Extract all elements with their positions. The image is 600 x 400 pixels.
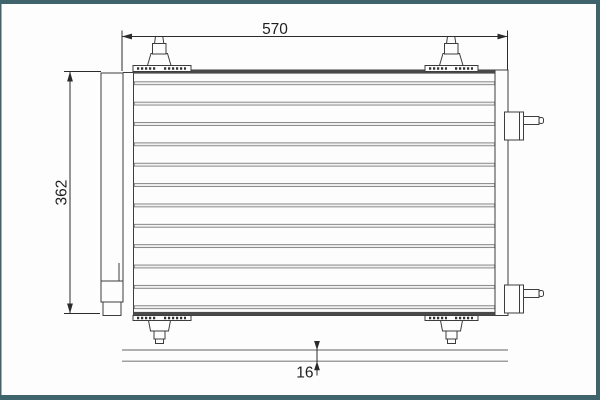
pin-tip <box>446 331 457 339</box>
frame-bottom <box>0 395 600 400</box>
bracket-plate <box>425 316 478 321</box>
arrowhead-left <box>122 34 132 40</box>
dimension-label-width: 570 <box>262 21 288 38</box>
drier-bottom-cap <box>103 302 121 316</box>
arrowhead-right <box>498 34 508 40</box>
pin-tip <box>154 331 165 339</box>
condenser-core <box>134 70 509 316</box>
core-tube <box>134 102 494 105</box>
core-tube <box>134 245 494 248</box>
bracket-plate <box>425 66 478 72</box>
pin-base <box>440 54 464 66</box>
bottom-right-mounting-bracket <box>425 316 478 344</box>
connector-pipe-end <box>539 291 544 297</box>
core-outline <box>134 70 509 316</box>
arrowhead-up <box>314 361 320 370</box>
dimension-depth: 16 <box>122 341 508 382</box>
top-right-mounting-bracket <box>425 37 478 72</box>
connector-block <box>505 112 524 140</box>
core-tubes <box>134 82 494 309</box>
connector-block <box>505 285 524 313</box>
condenser-assembly <box>101 37 544 344</box>
top-left-mounting-bracket <box>133 37 191 72</box>
page-frame <box>0 0 600 400</box>
dimension-label-depth: 16 <box>296 365 313 382</box>
core-tube <box>134 204 494 207</box>
pin-foot <box>448 339 456 344</box>
drier-body <box>101 73 123 302</box>
core-tube <box>134 306 494 309</box>
core-tube <box>134 184 494 187</box>
arrowhead-top <box>67 72 73 82</box>
core-tube <box>134 82 494 85</box>
arrowhead-bottom <box>67 304 73 314</box>
arrowhead-down <box>314 341 320 350</box>
connector-pipe <box>524 290 540 298</box>
core-tube <box>134 285 494 288</box>
pin-foot <box>156 339 164 344</box>
pin-cap <box>447 37 456 44</box>
pin-mid <box>153 44 167 55</box>
top-right-pipe-connector <box>505 112 544 140</box>
core-tube <box>134 123 494 126</box>
frame-top <box>0 0 600 4</box>
pin-base <box>148 54 172 66</box>
bottom-left-mounting-bracket <box>133 316 191 344</box>
pin-cap <box>155 37 164 44</box>
core-tube <box>134 224 494 227</box>
dimension-height: 362 <box>54 72 102 314</box>
frame-left <box>0 0 2 400</box>
core-tube <box>134 265 494 268</box>
frame-right <box>596 0 600 400</box>
pin-base <box>441 321 463 332</box>
receiver-drier <box>101 73 133 316</box>
pin-base <box>149 321 171 332</box>
drawing-page: 570 362 16 <box>0 0 600 400</box>
core-tube <box>134 143 494 146</box>
right-tank <box>495 70 508 316</box>
core-bottom-plate <box>134 312 509 316</box>
core-tube <box>134 163 494 166</box>
connector-pipe-end <box>539 118 544 124</box>
bottom-right-pipe-connector <box>505 285 544 313</box>
pin-mid <box>445 44 459 55</box>
connector-pipe <box>524 117 540 125</box>
technical-drawing-canvas: 570 362 16 <box>0 0 600 400</box>
dimension-label-height: 362 <box>54 180 71 206</box>
